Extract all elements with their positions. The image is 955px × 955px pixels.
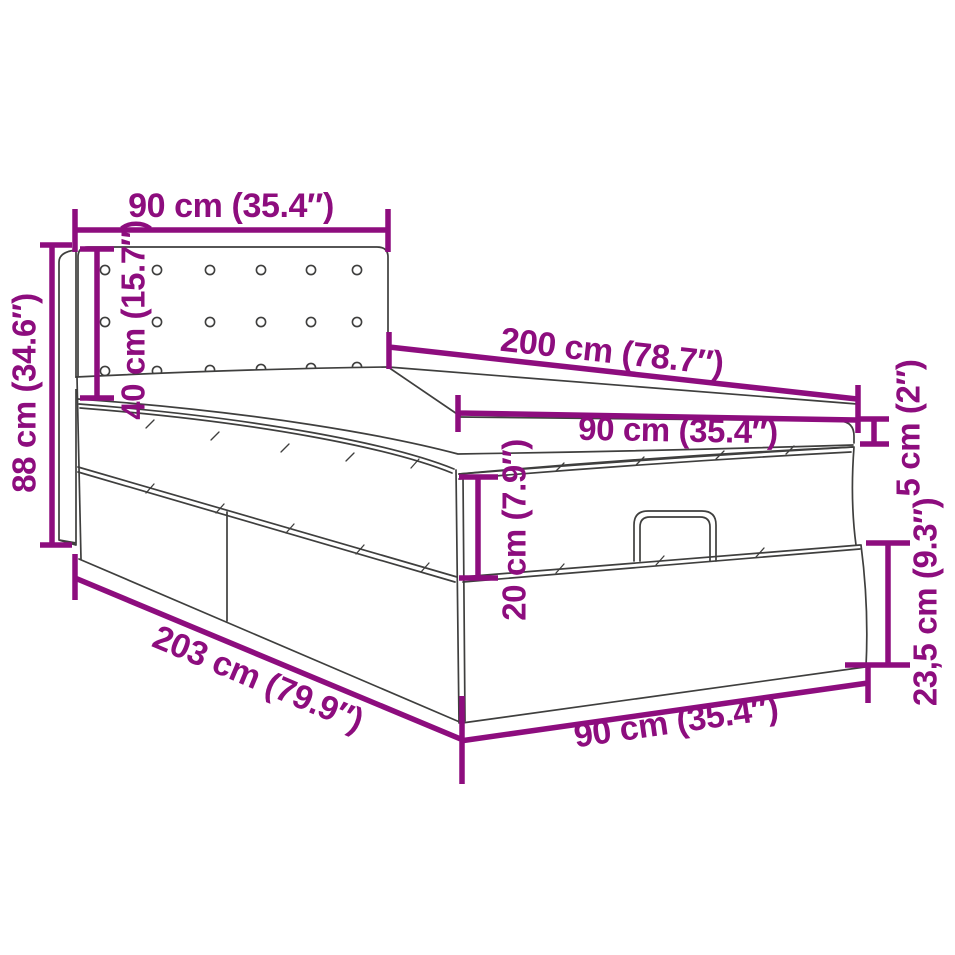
dim-label-mattress-width: 90 cm (35.4″) — [578, 410, 778, 450]
dim-label-base-width: 90 cm (35.4″) — [571, 689, 780, 756]
base-right-edge — [861, 545, 867, 667]
dim-overall-height: 88 cm (34.6″) — [6, 245, 73, 545]
dim-label-topper-thickness: 5 cm (2″) — [890, 360, 927, 497]
dim-base-height: 23,5 cm (9.3″) — [845, 498, 944, 706]
headboard-side-panel — [59, 250, 76, 545]
mattress — [76, 367, 857, 559]
top-box-right-edge — [852, 447, 856, 545]
dim-headboard-height: 40 cm (15.7″) — [80, 220, 152, 420]
dim-label-headboard-height: 40 cm (15.7″) — [115, 220, 152, 420]
front-corner-edge-b — [463, 476, 465, 721]
dimensions: 90 cm (35.4″) 200 cm (78.7″) 90 cm (35.4… — [6, 187, 944, 784]
bed-dimension-diagram: 90 cm (35.4″) 200 cm (78.7″) 90 cm (35.4… — [0, 0, 955, 955]
mattress-corner-edge — [388, 367, 460, 416]
storage-base — [79, 512, 867, 723]
dim-label-overall-height: 88 cm (34.6″) — [6, 293, 43, 493]
top-box-lower-edge-a — [78, 467, 860, 577]
lift-handle — [634, 511, 716, 561]
dim-label-upper-box-height: 20 cm (7.9″) — [496, 439, 533, 621]
dim-label-headboard-width: 90 cm (35.4″) — [128, 187, 334, 225]
dim-upper-box-height: 20 cm (7.9″) — [459, 439, 533, 621]
diagram-svg: 90 cm (35.4″) 200 cm (78.7″) 90 cm (35.4… — [0, 0, 955, 955]
front-corner-edge-a — [456, 470, 459, 723]
dim-label-base-height: 23,5 cm (9.3″) — [907, 498, 944, 706]
dim-base-width: 90 cm (35.4″) — [460, 663, 868, 755]
ottoman-top-box — [78, 447, 860, 723]
dim-overall-length: 203 cm (79.9″) — [75, 554, 463, 784]
dim-topper-thickness: 5 cm (2″) — [860, 360, 927, 497]
top-box-lower-edge-b — [78, 472, 860, 582]
